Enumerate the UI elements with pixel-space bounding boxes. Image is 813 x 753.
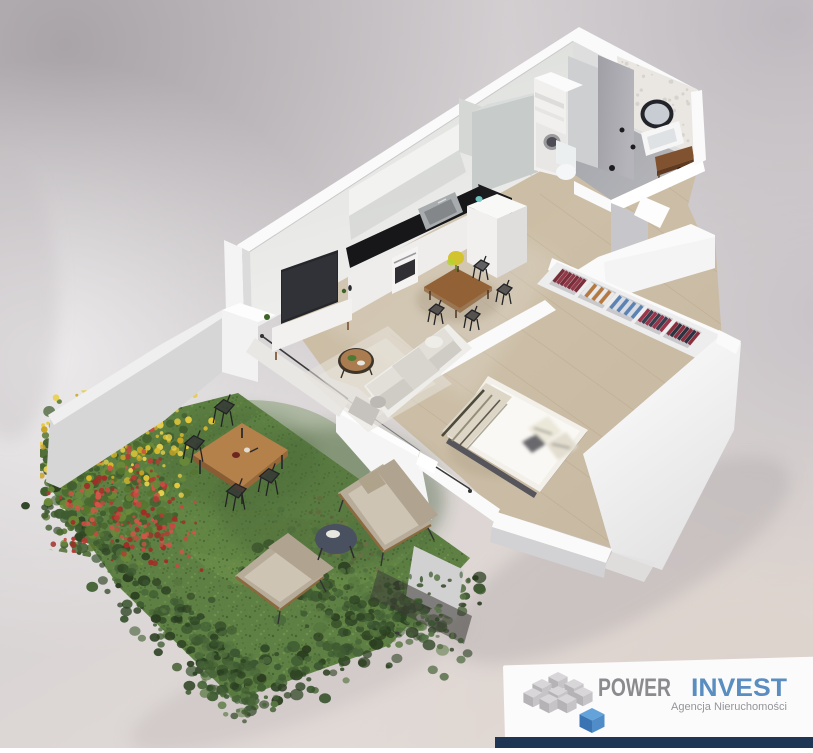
svg-text:Agencja Nieruchomości: Agencja Nieruchomości [671,701,787,713]
svg-text:POWER: POWER [598,674,671,702]
svg-text:INVEST: INVEST [691,674,787,702]
